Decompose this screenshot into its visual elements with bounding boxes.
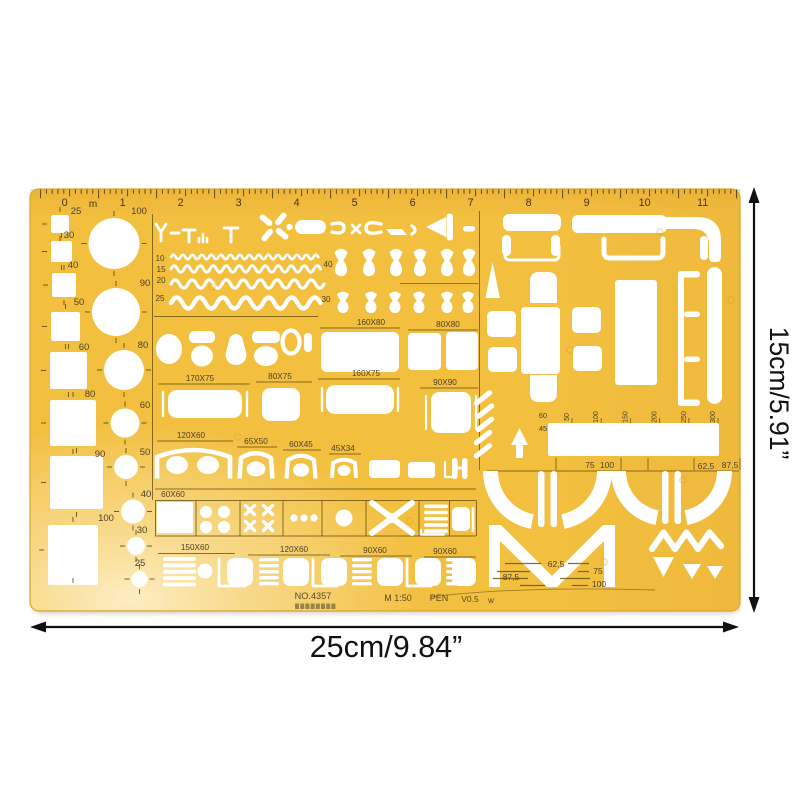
svg-text:100: 100 [600, 460, 614, 470]
svg-text:5: 5 [352, 197, 358, 209]
svg-text:90: 90 [95, 449, 106, 460]
svg-text:8: 8 [526, 197, 532, 209]
svg-text:62,5: 62,5 [698, 461, 715, 471]
svg-text:87,5: 87,5 [722, 460, 739, 470]
svg-text:50: 50 [74, 297, 85, 308]
svg-text:120X60: 120X60 [177, 431, 206, 440]
svg-text:30: 30 [64, 230, 75, 241]
svg-text:45X34: 45X34 [331, 444, 355, 453]
svg-text:2: 2 [178, 197, 184, 209]
svg-text:3: 3 [236, 197, 242, 209]
svg-text:60X60: 60X60 [161, 490, 185, 499]
svg-text:25cm/9.84”: 25cm/9.84” [310, 630, 463, 664]
svg-text:20: 20 [156, 276, 166, 285]
svg-text:80: 80 [138, 340, 149, 351]
svg-text:10: 10 [639, 197, 651, 209]
svg-text:100: 100 [98, 513, 114, 524]
svg-text:1: 1 [120, 197, 126, 209]
svg-text:62,5: 62,5 [548, 559, 565, 569]
svg-text:80X75: 80X75 [268, 372, 292, 381]
svg-text:25: 25 [71, 206, 82, 217]
svg-text:300: 300 [710, 411, 717, 423]
svg-text:170X75: 170X75 [186, 374, 215, 383]
svg-text:w: w [487, 596, 494, 605]
svg-text:90X60: 90X60 [433, 547, 457, 556]
svg-text:150: 150 [622, 411, 629, 423]
svg-text:100: 100 [593, 411, 600, 423]
svg-text:100: 100 [592, 579, 606, 589]
svg-text:9: 9 [584, 197, 590, 209]
svg-text:PEN: PEN [430, 593, 449, 603]
svg-text:30: 30 [137, 525, 148, 536]
svg-text:15: 15 [156, 265, 166, 274]
svg-text:60: 60 [140, 400, 151, 411]
svg-text:6: 6 [410, 197, 416, 209]
svg-text:40: 40 [323, 260, 333, 269]
svg-text:60: 60 [79, 342, 90, 353]
svg-text:100: 100 [131, 206, 147, 217]
svg-text:80: 80 [85, 389, 96, 400]
svg-text:30: 30 [321, 295, 331, 304]
svg-text:0: 0 [62, 197, 68, 209]
svg-text:40: 40 [68, 260, 79, 271]
svg-text:40: 40 [141, 489, 152, 500]
svg-text:120X60: 120X60 [280, 545, 309, 554]
svg-text:m: m [89, 199, 97, 210]
svg-text:11: 11 [697, 197, 708, 209]
svg-text:15cm/5.91”: 15cm/5.91” [764, 327, 794, 460]
svg-text:M 1:50: M 1:50 [384, 593, 412, 603]
svg-text:65X50: 65X50 [244, 437, 268, 446]
svg-text:25: 25 [155, 294, 165, 303]
svg-text:60X45: 60X45 [289, 440, 313, 449]
svg-text:50: 50 [564, 413, 571, 421]
svg-text:80X80: 80X80 [436, 320, 460, 329]
svg-text:160X80: 160X80 [357, 318, 386, 327]
svg-text:90X90: 90X90 [433, 378, 457, 387]
svg-text:45: 45 [539, 424, 547, 433]
svg-text:87,5: 87,5 [503, 572, 520, 582]
svg-text:V0.5: V0.5 [461, 594, 479, 604]
svg-text:NO.4357: NO.4357 [295, 591, 332, 601]
svg-text:250: 250 [681, 411, 688, 423]
svg-text:150X60: 150X60 [181, 543, 210, 552]
svg-text:90X60: 90X60 [363, 546, 387, 555]
svg-text:4: 4 [294, 197, 300, 209]
svg-text:75: 75 [593, 566, 603, 576]
svg-text:10: 10 [155, 254, 165, 263]
svg-text:50: 50 [140, 447, 151, 458]
svg-text:75: 75 [585, 460, 595, 470]
svg-text:200: 200 [652, 411, 659, 423]
svg-text:160X75: 160X75 [352, 369, 381, 378]
svg-text:7: 7 [468, 197, 474, 209]
svg-text:60: 60 [539, 411, 547, 420]
svg-text:90: 90 [140, 278, 151, 289]
